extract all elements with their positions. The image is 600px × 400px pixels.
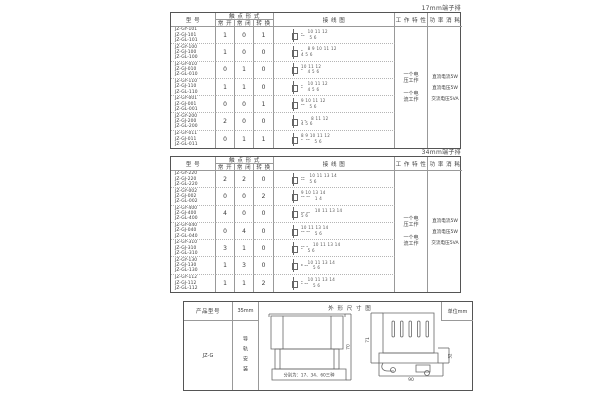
coil-symbol	[290, 63, 297, 76]
coil-symbol	[290, 207, 297, 220]
power-line-ac-voltage: 交流电压5VA	[431, 96, 458, 102]
no-count-cell: 0	[216, 62, 235, 79]
diagram-top-terminals: ⎵ 10 11 12	[301, 82, 328, 87]
power-consumption-cell: 直流电流5W 直流电压5W 交流电压5VA	[428, 171, 462, 292]
diagram-bottom-terminals: ⎴ 4 5 6	[301, 88, 328, 93]
no-count-cell: 1	[216, 27, 235, 44]
no-count-cell: 1	[216, 275, 235, 292]
model-cell: JZ-GY-001JZ-GJ-001JZ-GL-001	[171, 96, 216, 113]
diagram-bottom-terminals: ⎴⎴ 5 6	[301, 180, 337, 185]
diagram-bottom-terminals: ⎴⎴ 5 6	[301, 105, 326, 110]
product-model-value: JZ-G	[184, 321, 233, 390]
nc-count-cell: 0	[235, 206, 254, 223]
no-count-cell: 0	[216, 188, 235, 205]
nc-count-cell: 0	[235, 96, 254, 113]
no-count-cell: 1	[216, 79, 235, 96]
outline-drawings: 分别为：17、34、60三种 70	[259, 302, 474, 390]
coil-symbol	[290, 242, 297, 255]
no-count-cell: 0	[216, 131, 235, 148]
column-header-contact-form: 触 点 形 式	[216, 13, 274, 20]
column-header-working-characteristic: 工 作 特 性	[395, 157, 428, 171]
column-header-working-characteristic: 工 作 特 性	[395, 13, 428, 27]
side-height-dimension: 71	[365, 337, 371, 343]
model-cell: JZ-GY-010JZ-GJ-010JZ-GL-010	[171, 62, 216, 79]
co-count-cell: 1	[254, 131, 274, 148]
working-characteristic-cell: 一个电 压工作 一个电 流工作	[395, 27, 428, 148]
diagram-bottom-terminals: ⎴ 5 6	[301, 249, 340, 254]
model-cell: JZ-GY-112JZ-GJ-112JZ-GL-112	[171, 275, 216, 292]
nc-count-cell: 3	[235, 257, 254, 274]
nc-count-cell: 1	[235, 240, 254, 257]
model-cell: JZ-GY-011JZ-GJ-011JZ-GL-011	[171, 131, 216, 148]
work-voltage-text: 一个电 压工作	[403, 216, 418, 228]
front-view-drawing	[269, 314, 351, 380]
co-count-cell: 0	[254, 113, 274, 130]
datasheet-page: 17mm端子排 型 号 触 点 形 式 常 开 常 闭 转 换 接 线 图 工 …	[0, 0, 600, 400]
nc-count-cell: 1	[235, 79, 254, 96]
co-count-cell: 2	[254, 188, 274, 205]
column-header-wiring-diagram: 接 线 图	[274, 13, 395, 27]
wiring-diagram: ⎵⎵ 10 11 13 14⎴⎴ 5 6	[274, 171, 395, 188]
work-current-text: 一个电 流工作	[403, 235, 418, 247]
rail-size-label: 35mm	[233, 302, 259, 321]
co-count-cell: 1	[254, 27, 274, 44]
coil-symbol	[290, 190, 297, 203]
model-cell: JZ-GY-400JZ-GJ-400JZ-GL-400	[171, 206, 216, 223]
power-line-dc-current: 直流电流5W	[432, 218, 458, 224]
co-count-cell: 0	[254, 79, 274, 96]
wiring-diagram: 10 11 13 14⎴⎴ ⎴⎴ 5 6	[274, 223, 395, 240]
coil-symbol	[290, 115, 297, 128]
column-header-wiring-diagram: 接 线 图	[274, 157, 395, 171]
diagram-top-terminals: ⎵ 10 11 12	[301, 30, 328, 35]
column-header-normally-closed: 常 闭	[235, 164, 254, 171]
diagram-bottom-terminals: ⎴⎴ 5 6	[301, 36, 328, 41]
coil-symbol	[290, 225, 297, 238]
coil-symbol	[290, 98, 297, 111]
coil-symbol	[290, 46, 297, 59]
work-voltage-text: 一个电 压工作	[403, 72, 418, 84]
no-count-cell: 2	[216, 113, 235, 130]
model-cell: JZ-GY-002JZ-GJ-002JZ-GL-002	[171, 188, 216, 205]
column-header-normally-open: 常 开	[216, 164, 235, 171]
column-header-model: 型 号	[171, 157, 216, 171]
coil-symbol	[290, 259, 297, 272]
side-view-drawing	[371, 313, 449, 376]
nc-count-cell: 0	[235, 188, 254, 205]
work-current-text: 一个电 流工作	[403, 91, 418, 103]
side-width-dimension: 90	[408, 377, 414, 383]
diagram-bottom-terminals: ⎴ ⎴⎴ 5 6	[301, 266, 335, 271]
power-line-dc-voltage: 直流电压5W	[432, 85, 458, 91]
terminal-strip-label-17mm: 17mm端子排	[422, 3, 461, 12]
column-header-changeover: 转 换	[254, 20, 274, 27]
wiring-diagram: 9 10 11 12⎴⎴ 5 6	[274, 96, 395, 113]
wiring-diagram: ⎵ 8 9 10 11 124 5 6	[274, 44, 395, 61]
model-cell: JZ-GY-220JZ-GJ-220JZ-GL-220	[171, 171, 216, 188]
model-cell: JZ-GY-101JZ-GJ-101JZ-GL-101	[171, 27, 216, 44]
model-cell: JZ-GY-100JZ-GJ-100JZ-GL-100	[171, 44, 216, 61]
no-count-cell: 4	[216, 206, 235, 223]
co-count-cell: 2	[254, 275, 274, 292]
diagram-bottom-terminals: ⎴ 4 5 6	[301, 70, 321, 75]
model-cell: JZ-GY-040JZ-GJ-040JZ-GL-040	[171, 223, 216, 240]
nc-count-cell: 0	[235, 44, 254, 61]
co-count-cell: 0	[254, 206, 274, 223]
column-header-normally-open: 常 开	[216, 20, 235, 27]
power-line-dc-voltage: 直流电压5W	[432, 229, 458, 235]
diagram-bottom-terminals: 4 5 6	[301, 53, 337, 58]
no-count-cell: 1	[216, 257, 235, 274]
wiring-diagram: ⎵ 10 11 12⎴⎴ 5 6	[274, 27, 395, 44]
no-count-cell: 0	[216, 223, 235, 240]
side-step-dimension: 32	[448, 353, 453, 359]
no-count-cell: 1	[216, 44, 235, 61]
column-header-contact-form: 触 点 形 式	[216, 157, 274, 164]
wiring-diagram: 9 10 13 14⎴⎴ ⎴⎴ 1 4	[274, 188, 395, 205]
co-count-cell: 0	[254, 44, 274, 61]
nc-count-cell: 1	[235, 62, 254, 79]
diagram-bottom-terminals: ⎴⎴ ⎴⎴ 5 6	[301, 232, 328, 237]
coil-symbol	[290, 81, 297, 94]
column-header-power-consumption: 功 率 消 耗	[428, 13, 462, 27]
wiring-diagram: ⎵⎵ ⎵⎵ 10 11 13 145 6	[274, 206, 395, 223]
no-count-cell: 2	[216, 171, 235, 188]
co-count-cell: 1	[254, 96, 274, 113]
relay-table-17mm: 型 号 触 点 形 式 常 开 常 闭 转 换 接 线 图 工 作 特 性 功 …	[170, 12, 461, 149]
coil-symbol	[290, 173, 297, 186]
coil-symbol	[290, 277, 297, 290]
power-consumption-cell: 直流电流5W 直流电压5W 交流电压5VA	[428, 27, 462, 148]
rail-mount-label: 导轨安装	[233, 321, 259, 390]
nc-count-cell: 4	[235, 223, 254, 240]
diagram-bottom-terminals: ⎴⎴ ⎴⎴ 1 4	[301, 197, 326, 202]
model-cell: JZ-GY-200JZ-GJ-200JZ-GL-200	[171, 113, 216, 130]
diagram-bottom-terminals: ⎴ ⎴⎴ 5 6	[301, 140, 330, 145]
nc-count-cell: 0	[235, 27, 254, 44]
model-cell: JZ-GY-310JZ-GJ-310JZ-GL-310	[171, 240, 216, 257]
terminal-strip-label-34mm: 34mm端子排	[422, 147, 461, 156]
no-count-cell: 0	[216, 96, 235, 113]
working-characteristic-cell: 一个电 压工作 一个电 流工作	[395, 171, 428, 292]
wiring-diagram: ⎵ 10 11 13 14⎴ ⎴⎴ 5 6	[274, 275, 395, 292]
front-height-dimension: 70	[346, 344, 352, 350]
co-count-cell: 0	[254, 171, 274, 188]
coil-symbol	[290, 133, 297, 146]
relay-table-34mm: 型 号 触 点 形 式 常 开 常 闭 转 换 接 线 图 工 作 特 性 功 …	[170, 156, 461, 293]
coil-symbol	[290, 29, 297, 42]
column-header-changeover: 转 换	[254, 164, 274, 171]
co-count-cell: 0	[254, 240, 274, 257]
nc-count-cell: 0	[235, 113, 254, 130]
column-header-model: 型 号	[171, 13, 216, 27]
model-cell: JZ-GY-130JZ-GJ-130JZ-GL-130	[171, 257, 216, 274]
nc-count-cell: 1	[235, 131, 254, 148]
co-count-cell: 0	[254, 223, 274, 240]
wiring-diagram: ⎵⎵ ⎵ 10 11 13 14⎴ 5 6	[274, 240, 395, 257]
diagram-bottom-terminals: 4 5 6	[301, 122, 328, 127]
power-line-ac-voltage: 交流电压5VA	[431, 240, 458, 246]
nc-count-cell: 1	[235, 275, 254, 292]
wiring-diagram: 10 11 12⎴ 4 5 6	[274, 62, 395, 79]
wiring-diagram: ⎵ 10 11 12⎴ 4 5 6	[274, 79, 395, 96]
diagram-bottom-terminals: ⎴ ⎴⎴ 5 6	[301, 284, 335, 289]
wiring-diagram: 8 9 10 11 12⎴ ⎴⎴ 5 6	[274, 131, 395, 148]
diagram-top-terminals: 10 11 13 14	[301, 226, 328, 231]
nc-count-cell: 2	[235, 171, 254, 188]
width-variants-annotation: 分别为：17、34、60三种	[284, 372, 335, 379]
diagram-bottom-terminals: 5 6	[301, 214, 342, 219]
wiring-diagram: ⎵ 10 11 13 14⎴ ⎴⎴ 5 6	[274, 257, 395, 274]
co-count-cell: 0	[254, 62, 274, 79]
product-model-header: 产品型号	[184, 302, 233, 321]
diagram-top-terminals: ⎵⎵ 10 11 13 14	[301, 174, 337, 179]
no-count-cell: 3	[216, 240, 235, 257]
wiring-diagram: ⎵ ⎵ 8 11 124 5 6	[274, 113, 395, 130]
column-header-power-consumption: 功 率 消 耗	[428, 157, 462, 171]
power-line-dc-current: 直流电流5W	[432, 74, 458, 80]
dimension-table: 产品型号 JZ-G 35mm 导轨安装 外 形 尺 寸 图 单位mm 分别	[183, 301, 473, 391]
model-cell: JZ-GY-110JZ-GJ-110JZ-GL-110	[171, 79, 216, 96]
co-count-cell: 0	[254, 257, 274, 274]
column-header-normally-closed: 常 闭	[235, 20, 254, 27]
